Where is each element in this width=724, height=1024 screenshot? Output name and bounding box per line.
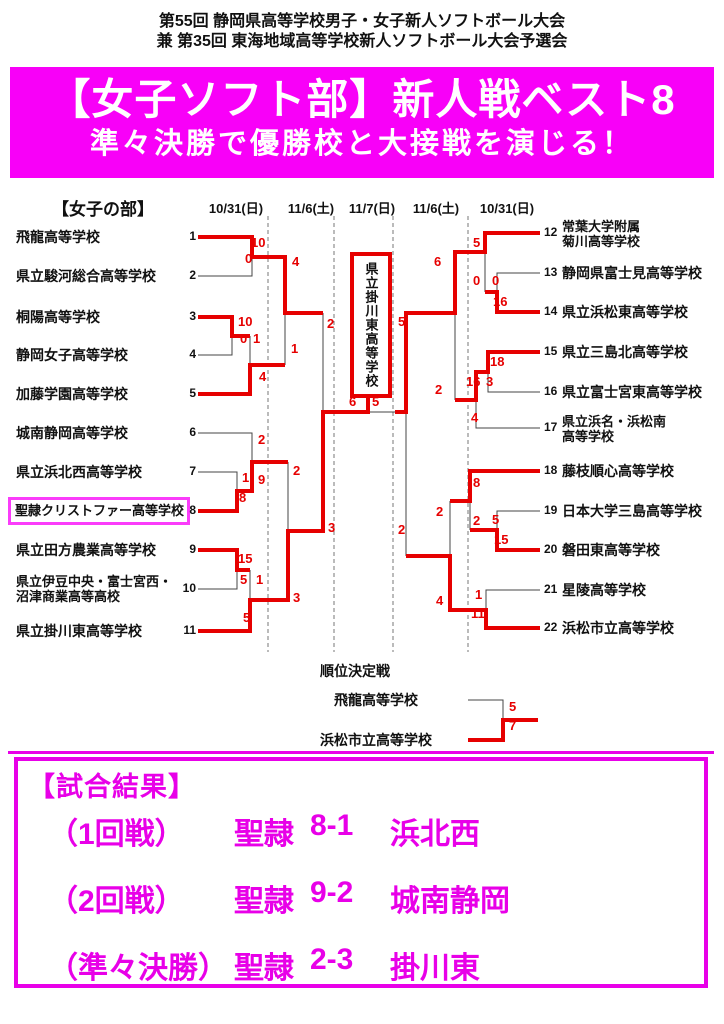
team-right-20: 磐田東高等学校 <box>562 541 660 559</box>
score-m15-bottom: 15 <box>494 532 508 547</box>
magenta-separator <box>8 751 714 754</box>
seed-19: 19 <box>544 503 560 517</box>
result-team2: 浜北西 <box>390 809 480 853</box>
team-right-21: 星陵高等学校 <box>562 581 646 599</box>
seed-7: 7 <box>180 464 196 478</box>
seed-8: 8 <box>180 503 196 517</box>
seed-2: 2 <box>180 268 196 282</box>
score-m9-top: 1 <box>256 572 263 587</box>
team-left-9: 県立田方農業高等学校 <box>16 541 156 559</box>
result-score: 2-3 <box>310 943 390 987</box>
seed-4: 4 <box>180 347 196 361</box>
score-m12-bottom: 3 <box>486 374 493 389</box>
result-row-2: （2回戦） 聖隷 9-2 城南静岡 <box>48 876 510 920</box>
result-row-3: （準々決勝） 聖隷 2-3 掛川東 <box>48 943 480 987</box>
seed-18: 18 <box>544 463 560 477</box>
seed-13: 13 <box>544 265 560 279</box>
score-qf3-bottom: 2 <box>435 382 442 397</box>
team-left-3: 桐陽高等学校 <box>16 308 100 326</box>
seed-17: 17 <box>544 420 560 434</box>
team-left-7: 県立浜北西高等学校 <box>16 463 142 481</box>
score-qf2-bottom: 3 <box>293 590 300 605</box>
seed-11: 11 <box>180 623 196 637</box>
score-sf-right-top: 5 <box>398 314 405 329</box>
team-right-14: 県立浜松東高等学校 <box>562 303 688 321</box>
team-right-18: 藤枝順心高等学校 <box>562 462 674 480</box>
score-m8-winner: 15 <box>238 551 252 566</box>
score-sf-right-bottom: 2 <box>398 522 405 537</box>
score-m7-bottom: 9 <box>258 472 265 487</box>
results-box: 【試合結果】 （1回戦） 聖隷 8-1 浜北西 （2回戦） 聖隷 9-2 城南静… <box>14 757 708 988</box>
score-m6-top: 1 <box>242 470 249 485</box>
playoff-team-bottom: 浜松市立高等学校 <box>320 730 432 750</box>
team-right-17: 県立浜名・浜松南高等学校 <box>562 414 666 444</box>
score-playoff-bottom: 7 <box>509 718 516 733</box>
team-left-1: 飛龍高等学校 <box>16 228 100 246</box>
team-right-12: 常葉大学附属菊川高等学校 <box>562 219 640 249</box>
score-m10-bottom: 0 <box>473 273 480 288</box>
score-m10-top: 5 <box>473 235 480 250</box>
score-qf4-bottom: 4 <box>436 593 444 608</box>
playoff-team-top: 飛龍高等学校 <box>334 690 418 710</box>
team-left-11: 県立掛川東高等学校 <box>16 622 142 640</box>
seed-9: 9 <box>180 542 196 556</box>
team-right-13: 静岡県富士見高等学校 <box>562 264 702 282</box>
score-m3-bottom: 4 <box>259 369 267 384</box>
score-qf1-bottom: 1 <box>291 341 298 356</box>
result-team2: 城南静岡 <box>390 876 510 920</box>
result-round: （準々決勝） <box>48 943 234 987</box>
team-left-6: 城南静岡高等学校 <box>16 424 128 442</box>
score-qf4-top: 2 <box>436 504 443 519</box>
result-team2: 掛川東 <box>390 943 480 987</box>
seed-22: 22 <box>544 620 560 634</box>
score-qf1-top: 4 <box>292 254 300 269</box>
result-score: 9-2 <box>310 876 390 920</box>
seed-21: 21 <box>544 582 560 596</box>
result-round: （1回戦） <box>48 809 234 853</box>
team-left-8-highlighted: 聖隷クリストファー高等学校 <box>8 497 190 525</box>
result-team1: 聖隷 <box>234 809 310 853</box>
team-left-10: 県立伊豆中央・富士宮西・沼津商業高等高校 <box>16 574 172 604</box>
team-left-5: 加藤学園高等学校 <box>16 385 128 403</box>
score-m12-top: 18 <box>490 354 504 369</box>
team-left-2: 県立駿河総合高等学校 <box>16 267 156 285</box>
score-m2-loser: 0 <box>240 331 247 346</box>
score-qf3-top: 6 <box>434 254 441 269</box>
score-m11-top: 0 <box>492 273 499 288</box>
team-right-22: 浜松市立高等学校 <box>562 619 674 637</box>
score-playoff-top: 5 <box>509 699 516 714</box>
score-qf2-top: 2 <box>293 463 300 478</box>
team-right-15: 県立三島北高等学校 <box>562 343 688 361</box>
team-left-4: 静岡女子高等学校 <box>16 346 128 364</box>
team-right-16: 県立富士宮東高等学校 <box>562 383 702 401</box>
champion-box: 県立掛川東高等学校 <box>350 252 392 398</box>
seed-1: 1 <box>180 229 196 243</box>
score-sf-left-bottom: 3 <box>328 520 335 535</box>
score-m13-top: 16 <box>466 374 480 389</box>
result-score: 8-1 <box>310 809 390 853</box>
score-m8-loser: 5 <box>240 572 247 587</box>
score-m14-bottom: 2 <box>473 513 480 528</box>
seed-12: 12 <box>544 225 560 239</box>
tournament-bulletin-page: 第55回 静岡県高等学校男子・女子新人ソフトボール大会 兼 第35回 東海地域高… <box>0 0 724 1024</box>
team-right-19: 日本大学三島高等学校 <box>562 502 702 520</box>
score-m16-bottom: 11 <box>471 606 485 621</box>
score-sf-left-top: 2 <box>327 316 334 331</box>
seed-16: 16 <box>544 384 560 398</box>
seed-15: 15 <box>544 344 560 358</box>
score-m1-winner: 10 <box>251 235 265 250</box>
seed-5: 5 <box>180 386 196 400</box>
playoff-label: 順位決定戦 <box>320 661 390 681</box>
score-m7-top: 2 <box>258 432 265 447</box>
result-row-1: （1回戦） 聖隷 8-1 浜北西 <box>48 809 480 853</box>
seed-6: 6 <box>180 425 196 439</box>
result-team1: 聖隷 <box>234 876 310 920</box>
score-m14-top: 8 <box>473 475 480 490</box>
seed-20: 20 <box>544 542 560 556</box>
score-m15-top: 5 <box>492 512 499 527</box>
score-m16-top: 1 <box>475 587 482 602</box>
result-round: （2回戦） <box>48 876 234 920</box>
score-m9-bottom: 5 <box>243 610 250 625</box>
score-m6-bottom: 8 <box>239 490 246 505</box>
seed-14: 14 <box>544 304 560 318</box>
score-m2-winner: 10 <box>238 314 252 329</box>
score-m11-bottom: 16 <box>493 294 507 309</box>
result-team1: 聖隷 <box>234 943 310 987</box>
score-m3-top: 1 <box>253 331 260 346</box>
score-m1-loser: 0 <box>245 251 252 266</box>
score-m13-bottom: 4 <box>471 410 479 425</box>
seed-10: 10 <box>180 581 196 595</box>
champion-name: 県立掛川東高等学校 <box>362 262 381 388</box>
seed-3: 3 <box>180 309 196 323</box>
results-title: 【試合結果】 <box>28 765 196 804</box>
